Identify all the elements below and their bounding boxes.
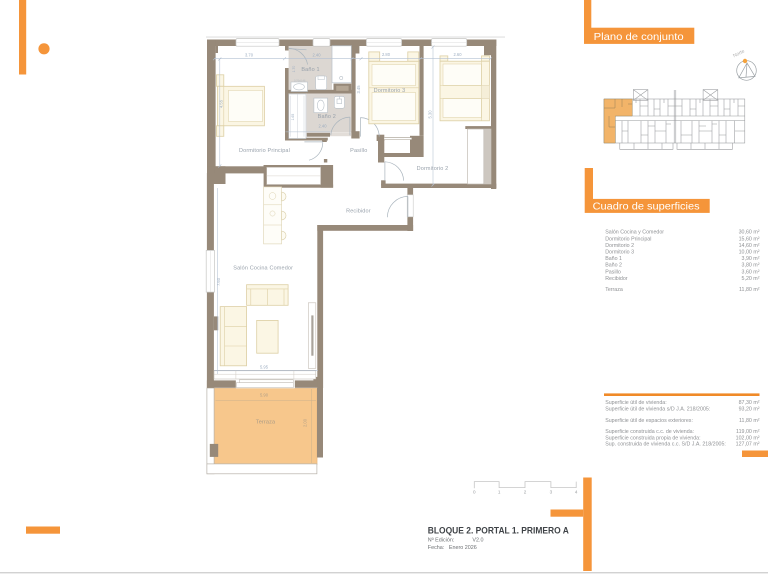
svg-text:Enero 2026: Enero 2026: [449, 545, 477, 551]
svg-text:2.80: 2.80: [382, 52, 391, 57]
svg-text:Dormitorio Principal: Dormitorio Principal: [239, 148, 290, 154]
svg-text:Superficie construida propia d: Superficie construida propia de vivienda…: [605, 435, 700, 441]
svg-text:Norte: Norte: [732, 48, 746, 59]
svg-text:Baño 1: Baño 1: [605, 256, 622, 262]
svg-text:Dormitorio Principal: Dormitorio Principal: [605, 236, 651, 242]
svg-text:5,20 m²: 5,20 m²: [742, 276, 760, 282]
svg-text:V2.0: V2.0: [472, 537, 483, 543]
svg-text:3,60 m²: 3,60 m²: [742, 269, 760, 275]
svg-text:Dormitorio 2: Dormitorio 2: [605, 243, 634, 249]
svg-text:87,30 m²: 87,30 m²: [739, 400, 760, 406]
svg-text:Fecha:: Fecha:: [428, 545, 444, 551]
svg-text:2.60: 2.60: [454, 52, 463, 57]
svg-text:Salón Cocina y Comedor: Salón Cocina y Comedor: [605, 230, 664, 236]
svg-text:1: 1: [498, 490, 501, 495]
svg-text:3,80 m²: 3,80 m²: [742, 263, 760, 269]
svg-text:1.70: 1.70: [292, 66, 296, 73]
svg-text:Sup. construida de vivienda c.: Sup. construida de vivienda c.c. S/D J.A…: [605, 442, 726, 448]
svg-text:0: 0: [473, 490, 476, 495]
svg-text:3: 3: [550, 490, 553, 495]
svg-text:5.90: 5.90: [260, 393, 269, 398]
svg-text:Dormitorio 3: Dormitorio 3: [605, 250, 634, 256]
svg-text:Baño 2: Baño 2: [605, 263, 622, 269]
svg-text:102,00 m²: 102,00 m²: [736, 435, 760, 441]
svg-text:15,60 m²: 15,60 m²: [739, 236, 760, 242]
svg-text:2.40: 2.40: [313, 53, 322, 58]
svg-text:10,00 m²: 10,00 m²: [739, 250, 760, 256]
svg-text:Terraza: Terraza: [605, 287, 623, 293]
svg-text:3.45: 3.45: [356, 85, 361, 94]
svg-text:4.55: 4.55: [219, 99, 224, 108]
svg-text:Nº Edición:: Nº Edición:: [428, 537, 455, 543]
svg-text:Recibidor: Recibidor: [346, 209, 371, 215]
svg-text:Superficie útil de vivienda s/: Superficie útil de vivienda s/D J.A. 218…: [605, 407, 710, 413]
svg-text:Cuadro de superficies: Cuadro de superficies: [593, 202, 700, 213]
svg-text:Dormitorio 2: Dormitorio 2: [417, 166, 449, 172]
svg-text:7.60: 7.60: [216, 277, 221, 286]
svg-text:Baño 1: Baño 1: [301, 67, 319, 73]
svg-text:Superficie construida c.c. de: Superficie construida c.c. de vivienda:: [605, 429, 694, 435]
svg-text:5.95: 5.95: [260, 364, 269, 369]
svg-text:Pasillo: Pasillo: [350, 148, 367, 154]
svg-text:5.30: 5.30: [428, 110, 433, 119]
svg-text:Recibidor: Recibidor: [605, 276, 628, 282]
svg-text:BLOQUE 2. PORTAL 1. PRIMERO A: BLOQUE 2. PORTAL 1. PRIMERO A: [428, 526, 569, 537]
svg-text:1.65: 1.65: [291, 114, 295, 121]
svg-text:Salón Cocina Comedor: Salón Cocina Comedor: [233, 265, 293, 271]
svg-text:11,80 m²: 11,80 m²: [739, 287, 760, 293]
svg-text:Terraza: Terraza: [256, 420, 276, 426]
svg-text:4: 4: [575, 490, 578, 495]
svg-text:2: 2: [524, 490, 527, 495]
svg-text:2.00: 2.00: [303, 418, 308, 427]
svg-text:30,60 m²: 30,60 m²: [739, 230, 760, 236]
svg-text:Superficie útil de vivienda:: Superficie útil de vivienda:: [605, 400, 667, 406]
svg-text:Superficie útil de espacios ex: Superficie útil de espacios exteriores:: [605, 418, 693, 424]
svg-text:Baño 2: Baño 2: [318, 114, 336, 120]
svg-text:119,00 m²: 119,00 m²: [736, 429, 760, 435]
svg-text:0.76x0.46: 0.76x0.46: [294, 78, 306, 82]
svg-text:Plano de conjunto: Plano de conjunto: [594, 32, 684, 43]
svg-text:127,07 m²: 127,07 m²: [736, 442, 760, 448]
svg-text:Pasillo: Pasillo: [605, 269, 621, 275]
svg-text:11,80 m²: 11,80 m²: [739, 418, 760, 424]
svg-text:93,20 m²: 93,20 m²: [739, 407, 760, 413]
svg-text:14,60 m²: 14,60 m²: [739, 243, 760, 249]
svg-text:3,90 m²: 3,90 m²: [742, 256, 760, 262]
svg-text:Dormitorio 3: Dormitorio 3: [374, 88, 406, 94]
svg-text:3.70: 3.70: [245, 53, 254, 58]
svg-text:2.40: 2.40: [319, 123, 328, 128]
